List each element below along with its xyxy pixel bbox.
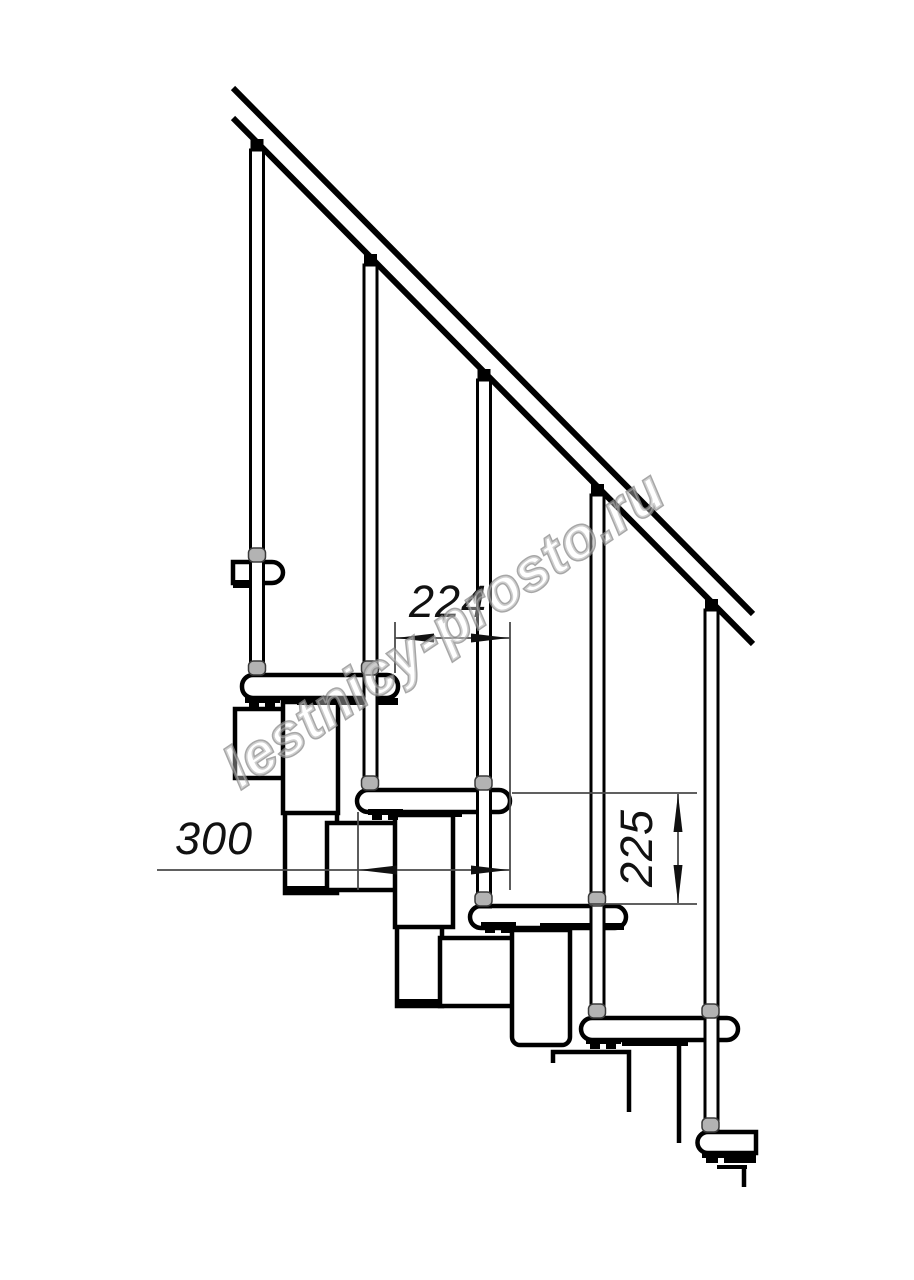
clamp-tread-3 [481,922,516,928]
handrail-top-edge [233,88,753,614]
staircase-technical-drawing: 224 300 225 lestnicy-prosto.ru [0,0,914,1280]
link-box-4-partial [553,1052,629,1112]
fastener-bead [702,1004,719,1018]
fastener-bead [589,1004,606,1018]
mount-plate-tread-3 [540,923,624,930]
clamp-block [733,1152,756,1163]
clamp-tab [606,1044,616,1049]
baluster-5-post [705,610,718,1132]
clamp-tread-1 [245,697,280,703]
baluster-1 [251,139,264,675]
drop-box-2-base [395,999,444,1007]
fastener-bead [475,892,492,906]
link-box-3 [440,938,518,1006]
arrowhead-down [674,865,683,903]
baluster-5 [705,599,718,1132]
tread-5-partial [698,1132,757,1153]
dimension-value-225: 225 [611,809,662,888]
watermark-text: lestnicy-prosto.ru [212,457,677,800]
dimension-value-300: 300 [175,813,253,864]
drop-box-2 [397,925,442,1006]
staircase-drawing-page: 224 300 225 lestnicy-prosto.ru [0,0,914,1280]
baluster-4-post [591,495,604,1018]
link-box-2 [327,823,403,890]
fastener-bead [249,661,266,675]
mount-plate-tread-4 [622,1039,688,1046]
clamp-tab [590,1044,600,1049]
fastener-bead [475,776,492,790]
clamp-tab [372,815,382,820]
clamp-tab [249,703,259,708]
clamp-tab [485,928,495,933]
clamp-tab [706,1158,718,1163]
fastener-bead [362,776,379,790]
fastener-bead [702,1118,719,1132]
module-box-3 [512,930,570,1045]
clamp-tab [388,815,398,820]
clamp-tread-2 [368,809,403,815]
module-box-2 [395,815,453,927]
baluster-1-post [251,150,264,675]
fastener-bead [249,548,266,562]
clamp-tread-4 [586,1038,621,1044]
mount-plate-tread-2 [404,810,462,817]
arrowhead-up [674,794,683,832]
clamp-tab [501,928,511,933]
